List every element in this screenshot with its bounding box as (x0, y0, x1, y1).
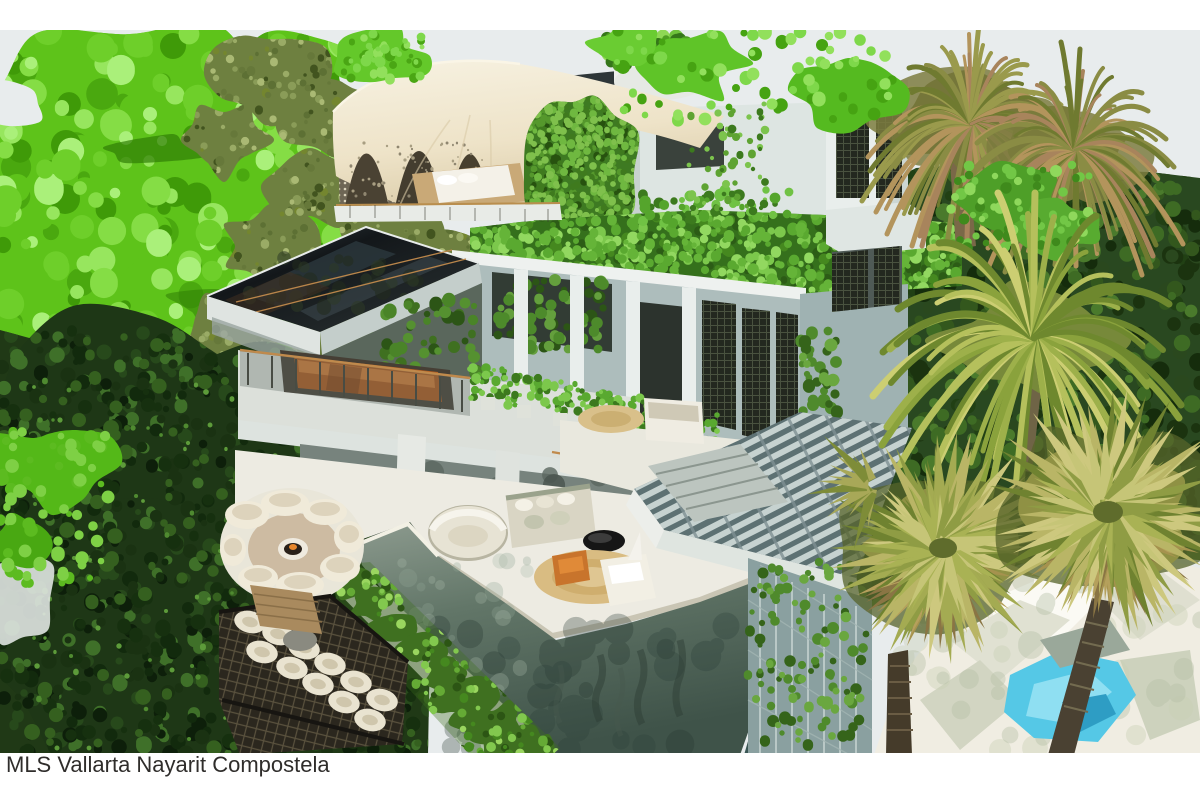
svg-text:MLS Vallarta Nayarit Compostel: MLS Vallarta Nayarit Compostela (6, 752, 330, 777)
